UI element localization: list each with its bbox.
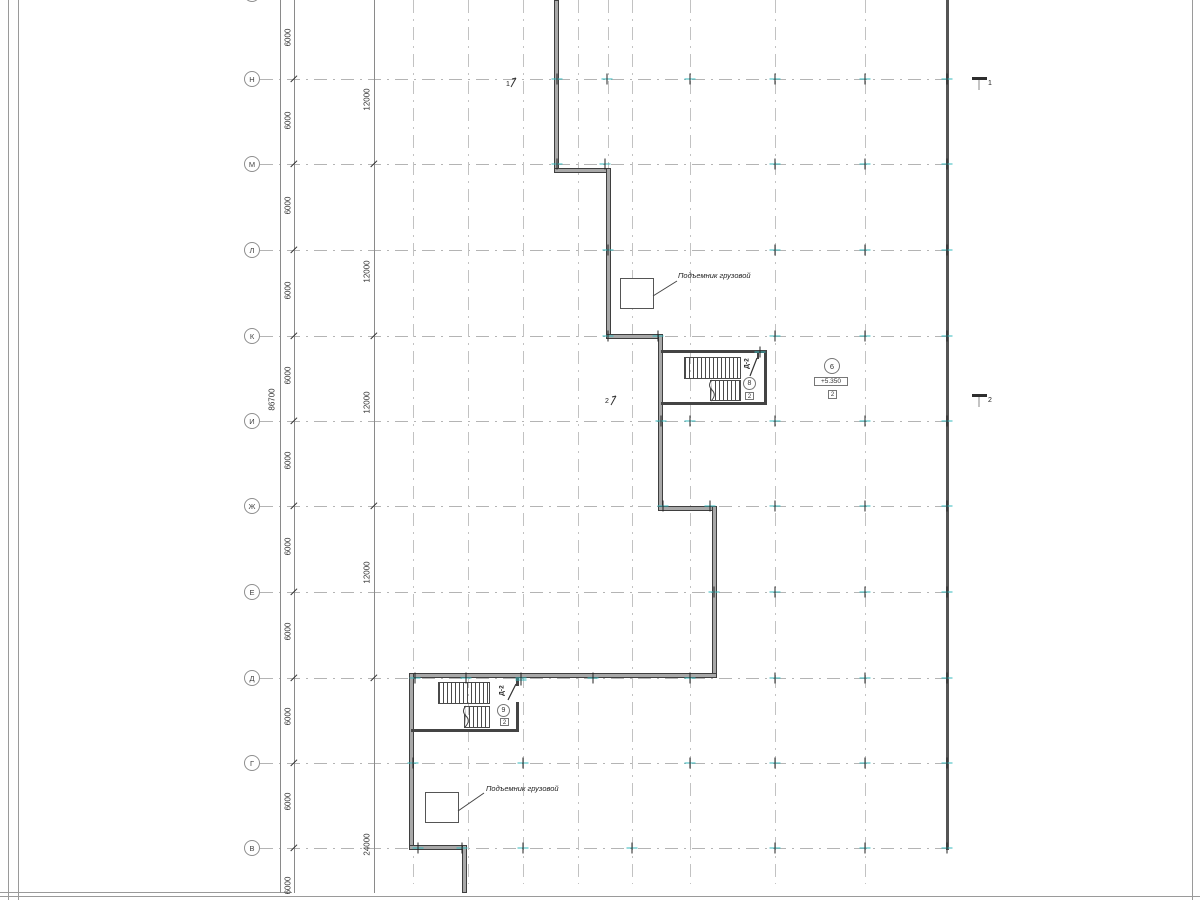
column-tick — [770, 587, 781, 598]
stair-lower-door-label: Д-2 — [499, 678, 506, 704]
section-bar-right-1 — [972, 77, 987, 80]
grid-column-line — [468, 0, 469, 884]
axis-bubble-И: И — [244, 413, 260, 429]
stair-upper-room-box: 2 — [745, 392, 754, 400]
column-tick — [685, 673, 696, 684]
grid-column-line — [632, 0, 633, 884]
stair-wall-segment — [411, 729, 519, 732]
stair-wall-segment — [661, 402, 767, 405]
stair-wall-segment — [661, 350, 767, 353]
column-tick — [860, 501, 871, 512]
section-mark-right-1: 1 — [988, 80, 992, 87]
grid-column-line — [578, 0, 579, 884]
lift-upper-label: Подъемник грузовой — [678, 271, 751, 280]
column-tick — [860, 673, 871, 684]
grid-column-line — [775, 0, 776, 884]
column-tick — [518, 758, 529, 769]
stair-wall-segment — [516, 702, 519, 732]
axis-bubble-Е: Е — [244, 584, 260, 600]
dim-text-12000: 24000 — [363, 823, 372, 867]
column-tick — [755, 347, 766, 358]
column-tick — [588, 673, 599, 684]
column-tick — [685, 416, 696, 427]
column-tick — [602, 74, 613, 85]
dim-text-12000: 12000 — [363, 250, 372, 294]
column-tick — [627, 843, 638, 854]
dim-text-12000: 12000 — [363, 78, 372, 122]
column-tick — [770, 758, 781, 769]
door-leaf-lower-icon — [508, 684, 516, 700]
column-tick — [770, 843, 781, 854]
lift-lower-label: Подъемник грузовой — [486, 784, 559, 793]
column-tick — [408, 758, 419, 769]
column-tick — [770, 416, 781, 427]
column-tick — [860, 843, 871, 854]
dim-line-12000 — [374, 0, 375, 893]
dim-text-6000: 6000 — [284, 439, 293, 483]
stair-flight — [464, 706, 490, 728]
column-tick — [770, 673, 781, 684]
column-tick — [709, 587, 720, 598]
lift-shaft-upper — [620, 278, 654, 309]
axis-bubble-Н: Н — [244, 71, 260, 87]
dim-text-6000: 6000 — [284, 16, 293, 60]
frame-bottom — [0, 896, 1200, 897]
stair-flight — [710, 380, 741, 401]
column-tick — [516, 675, 527, 686]
dim-text-6000: 6000 — [284, 695, 293, 739]
column-tick — [942, 843, 953, 854]
dim-text-6000: 6000 — [284, 610, 293, 654]
stair-flight — [438, 682, 490, 704]
column-tick — [942, 416, 953, 427]
column-tick — [942, 245, 953, 256]
door-leaf-upper-icon — [750, 358, 757, 376]
column-tick — [600, 159, 611, 170]
stair-upper-door-label: Д-2 — [744, 351, 751, 377]
level-marker-circle: 6 — [824, 358, 840, 374]
column-tick — [860, 758, 871, 769]
column-tick — [770, 74, 781, 85]
column-tick — [603, 331, 614, 342]
grid-column-line — [523, 0, 524, 884]
wall-segment — [409, 673, 717, 678]
column-tick — [860, 416, 871, 427]
dim-text-6000: 6000 — [284, 184, 293, 228]
axis-bubble-М: М — [244, 156, 260, 172]
column-tick — [705, 501, 716, 512]
column-tick — [603, 245, 614, 256]
dim-text-6000: 6000 — [284, 354, 293, 398]
total-dim-line — [280, 0, 281, 893]
dim-text-6000: 6000 — [284, 864, 293, 900]
frame-left-inner — [18, 0, 19, 900]
frame-right — [1192, 0, 1193, 900]
grid-column-line — [690, 0, 691, 884]
column-tick — [942, 501, 953, 512]
stair-lower-room-box: 2 — [500, 718, 509, 726]
column-tick — [770, 159, 781, 170]
column-tick — [770, 245, 781, 256]
section-mark-left-2: 2 — [605, 398, 609, 405]
axis-bubble-Д: Д — [244, 670, 260, 686]
section-bar-right-2 — [972, 394, 987, 397]
section-mark-right-2: 2 — [988, 397, 992, 404]
column-tick — [685, 74, 696, 85]
axis-bubble-К: К — [244, 328, 260, 344]
stair-upper-room-circle: 8 — [743, 377, 756, 390]
section-mark-left-1: 1 — [506, 81, 510, 88]
column-tick — [860, 74, 871, 85]
column-tick — [942, 331, 953, 342]
level-marker-elevation: +5.350 — [814, 377, 848, 386]
column-tick — [942, 673, 953, 684]
axis-line-Д — [260, 678, 950, 679]
frame-bottom-inner — [0, 892, 292, 893]
floor-plan-sheet: НМЛКИЖЕДГВ 60006000600060006000600060006… — [0, 0, 1200, 900]
axis-bubble-top-partial — [244, 0, 260, 2]
dim-text-12000: 12000 — [363, 381, 372, 425]
axis-bubble-В: В — [244, 840, 260, 856]
axis-line-Г — [260, 763, 950, 764]
column-tick — [658, 501, 669, 512]
level-marker-box: 2 — [828, 390, 837, 399]
stair-lower-room-circle: 9 — [497, 704, 510, 717]
axis-bubble-Л: Л — [244, 242, 260, 258]
column-tick — [942, 758, 953, 769]
column-tick — [770, 331, 781, 342]
column-tick — [656, 416, 667, 427]
dim-text-6000: 6000 — [284, 99, 293, 143]
stair-wall-segment — [764, 350, 767, 405]
line-overlay — [0, 0, 1200, 900]
column-tick — [461, 673, 472, 684]
column-tick — [860, 331, 871, 342]
column-tick — [860, 587, 871, 598]
column-tick — [860, 245, 871, 256]
column-tick — [860, 159, 871, 170]
dim-text-total: 86700 — [268, 378, 277, 422]
axis-line-Ж — [260, 506, 950, 507]
section-arrow-left-2 — [611, 396, 616, 405]
column-tick — [942, 587, 953, 598]
column-tick — [653, 331, 664, 342]
frame-left-outer — [8, 0, 9, 900]
column-tick — [770, 501, 781, 512]
column-tick — [413, 843, 424, 854]
wall-segment — [554, 0, 559, 173]
column-tick — [518, 843, 529, 854]
dim-text-6000: 6000 — [284, 269, 293, 313]
column-tick — [457, 843, 468, 854]
stair-flight — [684, 357, 741, 379]
leader-lift-upper — [653, 281, 677, 296]
axis-bubble-Г: Г — [244, 755, 260, 771]
column-tick — [410, 673, 421, 684]
column-tick — [685, 758, 696, 769]
leader-lift-lower — [458, 793, 484, 811]
dim-text-6000: 6000 — [284, 525, 293, 569]
dim-text-6000: 6000 — [284, 780, 293, 824]
column-tick — [942, 159, 953, 170]
column-tick — [552, 74, 563, 85]
dim-text-12000: 12000 — [363, 551, 372, 595]
axis-bubble-Ж: Ж — [244, 498, 260, 514]
lift-shaft-lower — [425, 792, 459, 823]
dim-line-6000 — [294, 0, 295, 893]
grid-column-line — [865, 0, 866, 884]
column-tick — [942, 74, 953, 85]
column-tick — [552, 159, 563, 170]
